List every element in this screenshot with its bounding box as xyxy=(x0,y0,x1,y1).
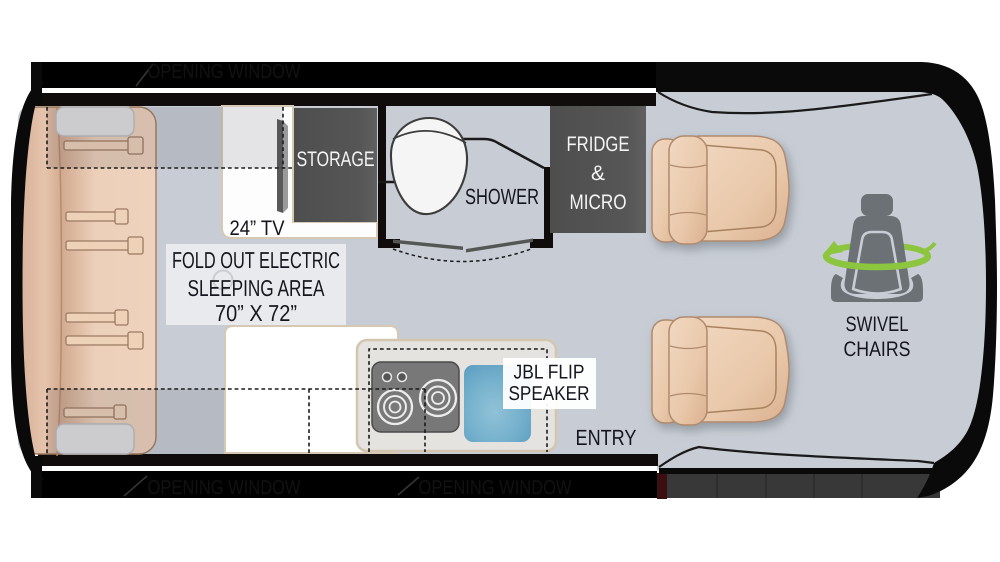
svg-text:24” TV: 24” TV xyxy=(230,217,285,240)
svg-text:OPENING WINDOW: OPENING WINDOW xyxy=(419,477,572,499)
svg-text:MICRO: MICRO xyxy=(570,191,627,214)
svg-text:FOLD OUT ELECTRIC: FOLD OUT ELECTRIC xyxy=(172,247,340,273)
svg-text:STORAGE: STORAGE xyxy=(297,148,375,171)
svg-text:ENTRY: ENTRY xyxy=(576,425,637,450)
svg-text:CHAIRS: CHAIRS xyxy=(844,338,911,361)
svg-text:70” X 72”: 70” X 72” xyxy=(215,300,297,326)
svg-text:OPENING WINDOW: OPENING WINDOW xyxy=(148,477,301,499)
svg-text:JBL FLIP: JBL FLIP xyxy=(514,362,585,384)
svg-text:&: & xyxy=(591,162,605,185)
svg-text:SPEAKER: SPEAKER xyxy=(509,383,590,405)
svg-text:FRIDGE: FRIDGE xyxy=(567,133,630,156)
svg-text:SHOWER: SHOWER xyxy=(465,184,539,209)
svg-text:OPENING WINDOW: OPENING WINDOW xyxy=(148,61,301,83)
svg-text:SLEEPING AREA: SLEEPING AREA xyxy=(188,275,325,301)
svg-text:SWIVEL: SWIVEL xyxy=(846,313,909,336)
